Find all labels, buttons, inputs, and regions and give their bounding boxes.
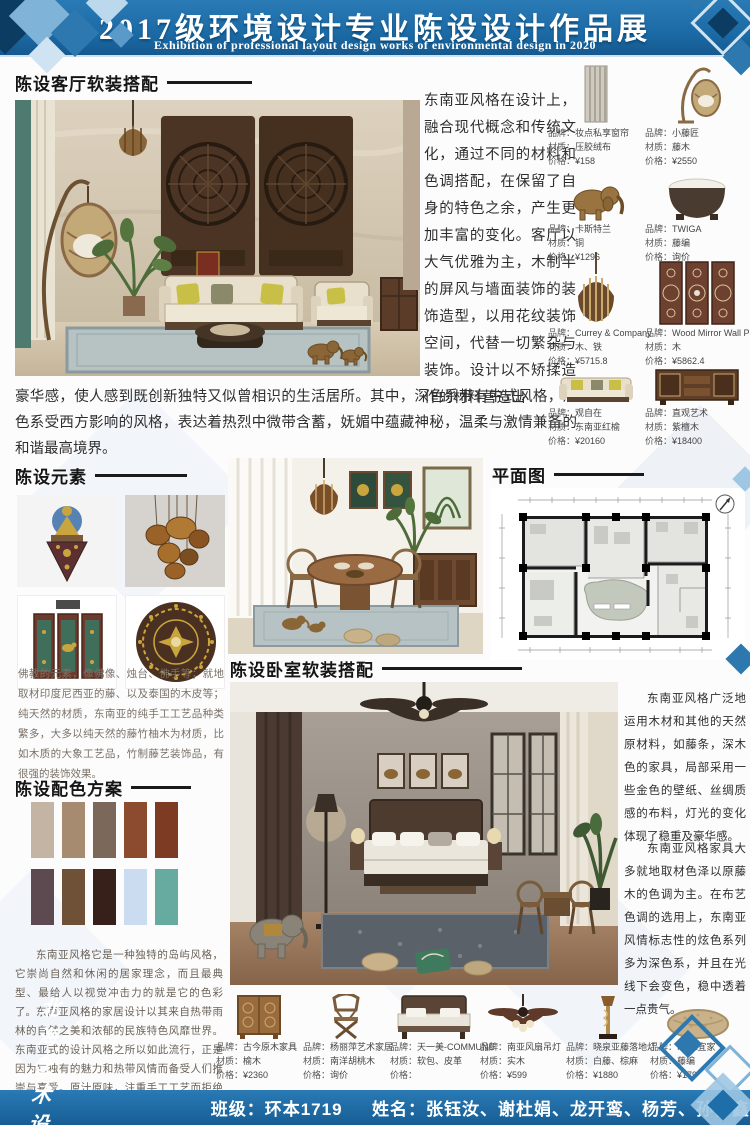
section-line bbox=[131, 786, 191, 789]
product-card: 品牌：天一美-COMMUNE 材质：软包、皮革 价格： bbox=[390, 992, 478, 1082]
section-plan: 平面图 bbox=[492, 462, 644, 487]
carved-cabinet-icon bbox=[216, 992, 302, 1040]
product-brand: 晓泉亚藤落地灯 bbox=[593, 1042, 656, 1052]
product-material: 白藤、棕麻 bbox=[593, 1056, 638, 1066]
product-price: ¥2360 bbox=[243, 1070, 268, 1080]
bedroom-photo bbox=[230, 682, 618, 985]
product-material: 软包、皮革 bbox=[417, 1056, 462, 1066]
elements-grid bbox=[17, 495, 225, 689]
color-swatch bbox=[124, 802, 147, 858]
section-line bbox=[382, 667, 522, 670]
product-brand: 古今原木家具 bbox=[243, 1042, 297, 1052]
product-card: 品牌：Wood Mirror Wall Pane 材质：木 价格：¥5862.4 bbox=[645, 254, 749, 368]
product-brand: 妆点私享窗帘 bbox=[575, 128, 629, 138]
class-label: 班级：环本1719 bbox=[211, 1100, 343, 1119]
section-living-label: 陈设客厅软装搭配 bbox=[15, 70, 159, 95]
product-card: 品牌：Currey & Company 材质：木、铁 价格：¥5715.8 bbox=[548, 250, 644, 368]
elements-description: 佛教的元素，像佛像、烛台、佛手等；就地取材印度尼西亚的藤、以及泰国的木皮等；纯天… bbox=[18, 664, 224, 784]
section-line bbox=[95, 474, 187, 477]
folding-chair-icon bbox=[303, 992, 389, 1040]
product-material: 南洋胡桃木 bbox=[330, 1056, 375, 1066]
product-price: 询价 bbox=[330, 1070, 348, 1080]
bed-icon bbox=[390, 992, 478, 1040]
product-material: 藤木 bbox=[672, 142, 690, 152]
product-price: ¥1880 bbox=[593, 1070, 618, 1080]
bedroom-illustration bbox=[230, 682, 618, 985]
product-material: 榆木 bbox=[243, 1056, 261, 1066]
product-card: 品牌：晓泉亚藤落地灯 材质：白藤、棕麻 价格：¥1880 bbox=[566, 992, 650, 1082]
section-palette: 陈设配色方案 bbox=[15, 775, 191, 800]
wall-panel-icon bbox=[645, 254, 749, 326]
section-line bbox=[554, 473, 644, 476]
section-plan-label: 平面图 bbox=[492, 462, 546, 487]
dining-room-photo bbox=[228, 458, 483, 654]
living-continuation-paragraph: 豪华感，使人感到既创新独特又似曾相识的生活居所。其中，深色系带有中式风格，浅色系… bbox=[15, 384, 577, 462]
product-card: 品牌：TWIGA 材质：藤编 价格：询价 bbox=[645, 166, 749, 264]
ceiling-fan-icon bbox=[480, 992, 566, 1040]
floor-plan-illustration bbox=[490, 488, 745, 660]
section-living: 陈设客厅软装搭配 bbox=[15, 70, 252, 95]
color-swatch bbox=[124, 869, 147, 925]
color-swatch bbox=[155, 869, 178, 925]
wood-pendant-image bbox=[125, 495, 225, 587]
bedroom-side-paragraph-1: 东南亚风格广泛地运用木材和其他的天然原材料，如藤条，深木色的家具，局部采用一些金… bbox=[624, 688, 746, 849]
page-subtitle: Exhibition of professional layout design… bbox=[0, 38, 750, 53]
product-material: 实木 bbox=[507, 1056, 525, 1066]
product-material: 压胶绒布 bbox=[575, 142, 611, 152]
section-bedroom: 陈设卧室软装搭配 bbox=[230, 656, 522, 681]
header-divider bbox=[0, 55, 750, 57]
pendant-lamp-icon bbox=[548, 250, 644, 326]
product-brand: TWIGA bbox=[672, 224, 702, 234]
color-swatch bbox=[93, 802, 116, 858]
living-room-photo bbox=[15, 100, 420, 376]
color-swatch bbox=[62, 802, 85, 858]
product-material: 东南亚红榆 bbox=[575, 422, 620, 432]
product-brand: 杨丽萍艺术家居 bbox=[330, 1042, 393, 1052]
product-price: ¥20160 bbox=[575, 436, 605, 446]
product-material: 铜 bbox=[575, 238, 584, 248]
product-card: 品牌：妆点私享窗帘 材质：压胶绒布 价格：¥158 bbox=[548, 62, 644, 168]
dining-room-illustration bbox=[228, 458, 483, 654]
product-card: 品牌：南亚风扇吊灯 材质：实木 价格：¥599 bbox=[480, 992, 566, 1082]
color-swatch bbox=[93, 869, 116, 925]
floor-lamp-icon bbox=[566, 992, 650, 1040]
product-brand: Wood Mirror Wall Pane bbox=[672, 328, 750, 338]
product-brand: 卡斯特兰 bbox=[575, 224, 611, 234]
class-info: 班级：环本1719 姓名：张钰汝、谢杜娟、龙开鸾、杨芳、孙怀鑫 bbox=[211, 1095, 750, 1120]
section-bedroom-label: 陈设卧室软装搭配 bbox=[230, 656, 374, 681]
color-swatch bbox=[155, 802, 178, 858]
product-price: ¥599 bbox=[507, 1070, 527, 1080]
tv-cabinet-icon bbox=[645, 360, 749, 406]
product-card: 品牌：杨丽萍艺术家居 材质：南洋胡桃木 价格：询价 bbox=[303, 992, 389, 1082]
product-card: 品牌：古今原木家具 材质：榆木 价格：¥2360 bbox=[216, 992, 302, 1082]
sofa-icon bbox=[548, 366, 644, 406]
footer-bar: 北海艺术设计学院 班级：环本1719 姓名：张钰汝、谢杜娟、龙开鸾、杨芳、孙怀鑫 bbox=[0, 1090, 750, 1125]
elephant-icon bbox=[548, 172, 644, 222]
product-price: ¥18400 bbox=[672, 436, 702, 446]
product-brand: 南亚风扇吊灯 bbox=[507, 1042, 561, 1052]
product-card: 品牌：直观艺术 材质：紫檀木 价格：¥18400 bbox=[645, 360, 749, 448]
poster: 2017级环境设计专业陈设设计作品展 Exhibition of profess… bbox=[0, 0, 750, 1125]
product-material: 藤编 bbox=[672, 238, 690, 248]
product-card: 品牌：观自在 材质：东南亚红榆 价格：¥20160 bbox=[548, 366, 644, 448]
product-card: 品牌：小藤匠 材质：藤木 价格：¥2550 bbox=[645, 62, 749, 168]
product-price: ¥2550 bbox=[672, 156, 697, 166]
ottoman-icon bbox=[645, 166, 749, 222]
section-line bbox=[167, 81, 252, 84]
color-swatch bbox=[62, 869, 85, 925]
section-elements: 陈设元素 bbox=[15, 463, 187, 488]
curtain-icon bbox=[548, 62, 644, 126]
product-price: ¥158 bbox=[575, 156, 595, 166]
hanging-chair-icon bbox=[645, 62, 749, 126]
product-brand: Currey & Company bbox=[575, 328, 652, 338]
color-swatch bbox=[31, 802, 54, 858]
color-swatch bbox=[31, 869, 54, 925]
living-room-illustration bbox=[15, 100, 420, 376]
product-material: 木 bbox=[672, 342, 681, 352]
product-brand: 直观艺术 bbox=[672, 408, 708, 418]
product-material: 紫檀木 bbox=[672, 422, 699, 432]
buddha-ornament-image bbox=[17, 495, 117, 587]
section-elements-label: 陈设元素 bbox=[15, 463, 87, 488]
product-price: ¥5715.8 bbox=[575, 356, 608, 366]
product-brand: 小藤匠 bbox=[672, 128, 699, 138]
section-palette-label: 陈设配色方案 bbox=[15, 775, 123, 800]
product-material: 木、铁 bbox=[575, 342, 602, 352]
product-brand: 观自在 bbox=[575, 408, 602, 418]
floor-plan-image bbox=[490, 488, 745, 660]
